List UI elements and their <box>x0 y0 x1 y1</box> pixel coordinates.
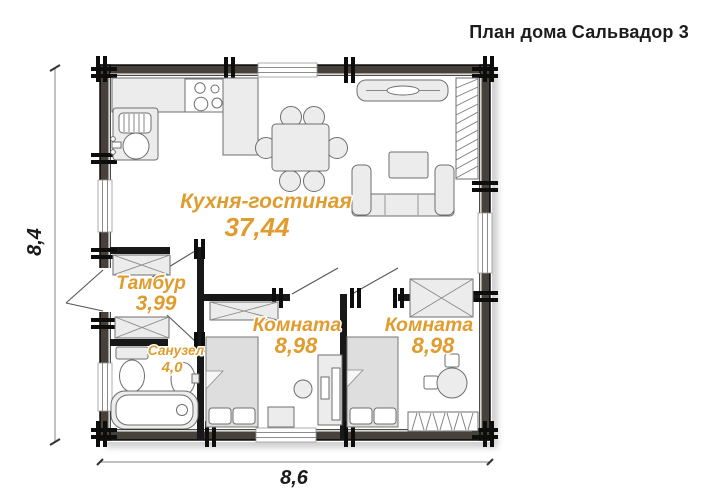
window-bottom <box>256 428 316 442</box>
living-room-area: 37,44 <box>224 212 290 242</box>
dimension-height-label: 8,4 <box>24 228 46 256</box>
dining-chair <box>327 138 348 159</box>
entrance-door <box>66 268 112 312</box>
bathroom-name: Санузел <box>148 343 205 358</box>
window-top <box>258 63 317 77</box>
dining-chair <box>280 171 301 192</box>
floor-plan-canvas: 8,4 8,6 Кухня-гостиная 37,44 Тамбур 3,99… <box>0 0 713 502</box>
stool <box>424 376 438 389</box>
window-left-bathroom <box>98 363 112 411</box>
sink-faucet <box>112 142 121 148</box>
desk <box>318 355 342 425</box>
dining-table <box>272 124 329 171</box>
living-room-name: Кухня-гостиная <box>180 190 352 213</box>
pillow <box>233 408 255 424</box>
bedroom-left-area: 8,98 <box>275 333 319 358</box>
pillow <box>209 408 231 424</box>
sink-bowl <box>123 133 149 159</box>
window-right <box>478 213 492 273</box>
living-bedroom-wall-left <box>204 294 290 301</box>
desk-chair <box>294 380 312 398</box>
bathtub <box>111 391 198 429</box>
bathroom-area: 4,0 <box>161 359 184 376</box>
stove <box>185 79 223 112</box>
hatched-wardrobe <box>408 412 478 431</box>
bathtub-drain <box>177 405 188 416</box>
dimension-width-label: 8,6 <box>280 467 309 489</box>
bedroom-right-area: 8,98 <box>412 333 456 358</box>
dimension-bottom: 8,6 <box>97 459 493 489</box>
kitchen-sink-unit <box>111 108 158 160</box>
pillow <box>350 408 372 424</box>
tv <box>387 86 419 95</box>
bed <box>206 337 258 427</box>
x-wardrobe-bedroom-right <box>410 279 473 317</box>
round-table <box>437 368 467 398</box>
window-left-living <box>98 180 112 232</box>
bed <box>347 337 398 427</box>
tv-console <box>357 80 448 101</box>
x-wardrobe-tambour-top <box>113 255 170 275</box>
floor-plan-page: План дома Сальвадор 3 <box>0 0 713 502</box>
small-table <box>268 407 294 427</box>
coffee-table <box>389 152 428 178</box>
x-wardrobe-tambour-bottom <box>115 317 169 338</box>
tambour-name: Тамбур <box>116 273 186 294</box>
hatched-storage <box>456 78 478 179</box>
dining-chair <box>304 171 325 192</box>
tambour-area: 3,99 <box>136 292 177 315</box>
dimension-left: 8,4 <box>24 65 60 445</box>
pillow <box>374 408 396 424</box>
tambour-top-wall <box>110 247 170 254</box>
